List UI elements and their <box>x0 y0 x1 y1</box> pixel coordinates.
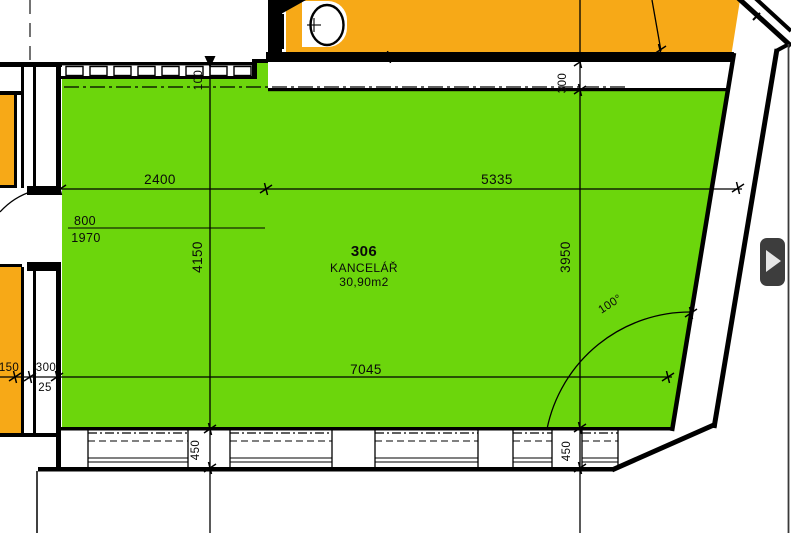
floorplan-viewer: 2400 5335 7045 4150 3950 100 300 800 197… <box>0 0 791 533</box>
room-area: 30,90m2 <box>339 275 389 289</box>
window <box>88 429 188 467</box>
dim-top-left-width: 2400 <box>144 172 176 187</box>
dim-top-right-width: 5335 <box>481 172 513 187</box>
dim-pier-left: 450 <box>190 440 202 460</box>
dim-left-seg-c: 25 <box>38 382 52 394</box>
neighbor-room-left-lower <box>0 267 22 433</box>
dim-left-seg-a: 150 <box>0 362 19 374</box>
panel-expand-button[interactable] <box>760 238 785 286</box>
dim-door-width: 800 <box>74 214 96 228</box>
dim-bottom-width: 7045 <box>350 362 382 377</box>
dim-left-seg-b: 300 <box>36 362 56 374</box>
neighbor-room-top <box>286 0 740 57</box>
room-name: KANCELÁŘ <box>330 260 398 275</box>
window <box>375 429 478 467</box>
window <box>230 429 332 467</box>
room-306-area[interactable] <box>62 63 728 427</box>
dim-top-wall-left: 100 <box>193 70 205 90</box>
dim-top-wall-right: 300 <box>557 73 569 93</box>
window <box>582 429 618 467</box>
window-band <box>88 429 618 467</box>
hatched-wall <box>66 67 251 76</box>
dim-door-height: 1970 <box>71 231 100 245</box>
door-jamb <box>27 262 58 271</box>
door-jamb <box>27 186 58 195</box>
dim-left-height: 4150 <box>190 241 205 273</box>
window <box>513 429 552 467</box>
neighbor-room-left-upper <box>0 95 16 188</box>
room-number: 306 <box>351 243 377 260</box>
dim-right-height: 3950 <box>558 241 573 273</box>
dim-pier-right: 450 <box>561 441 573 461</box>
